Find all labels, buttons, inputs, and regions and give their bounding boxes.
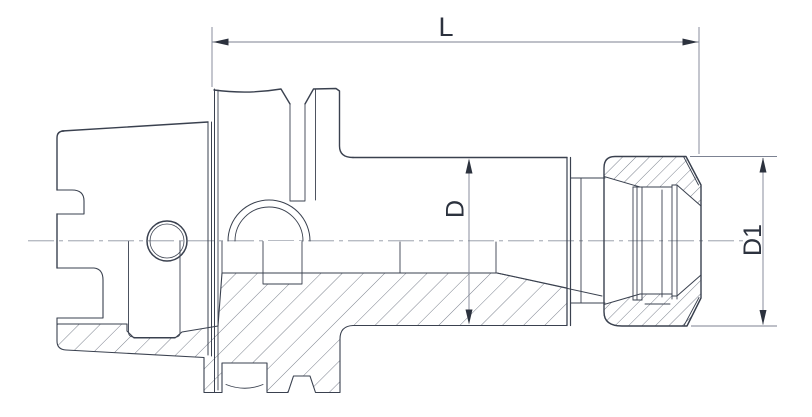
taper-top-edge <box>62 122 208 131</box>
v-groove <box>290 104 305 201</box>
ball-track-dome-outer <box>228 200 310 241</box>
body-section-hatch <box>57 273 567 393</box>
arrowhead-up <box>466 159 473 174</box>
ball-track-dome-inner <box>235 207 303 241</box>
nut-section-hatch-bottom <box>604 275 701 326</box>
arrowhead-left <box>213 39 229 46</box>
collet <box>633 185 677 304</box>
nut-section-hatch-top <box>604 157 701 207</box>
hsk-shank <box>57 122 212 356</box>
dimension-L: L <box>212 12 699 154</box>
gripper-notch-top <box>57 190 84 214</box>
ball-pocket-carve <box>263 241 302 284</box>
arrowhead-right <box>683 39 699 46</box>
dimension-label-D1: D1 <box>739 224 767 256</box>
cylinder-end-face <box>567 158 571 326</box>
gripper-notch-bottom <box>57 268 103 318</box>
dimension-label-L: L <box>438 12 453 42</box>
technical-drawing-page: L D D1 <box>0 0 812 417</box>
dimension-label-D: D <box>442 200 470 218</box>
arrowhead-down <box>760 310 767 325</box>
drive-slot-floor <box>226 385 263 389</box>
technical-drawing: L D D1 <box>0 0 812 417</box>
arrowhead-up <box>760 158 767 173</box>
